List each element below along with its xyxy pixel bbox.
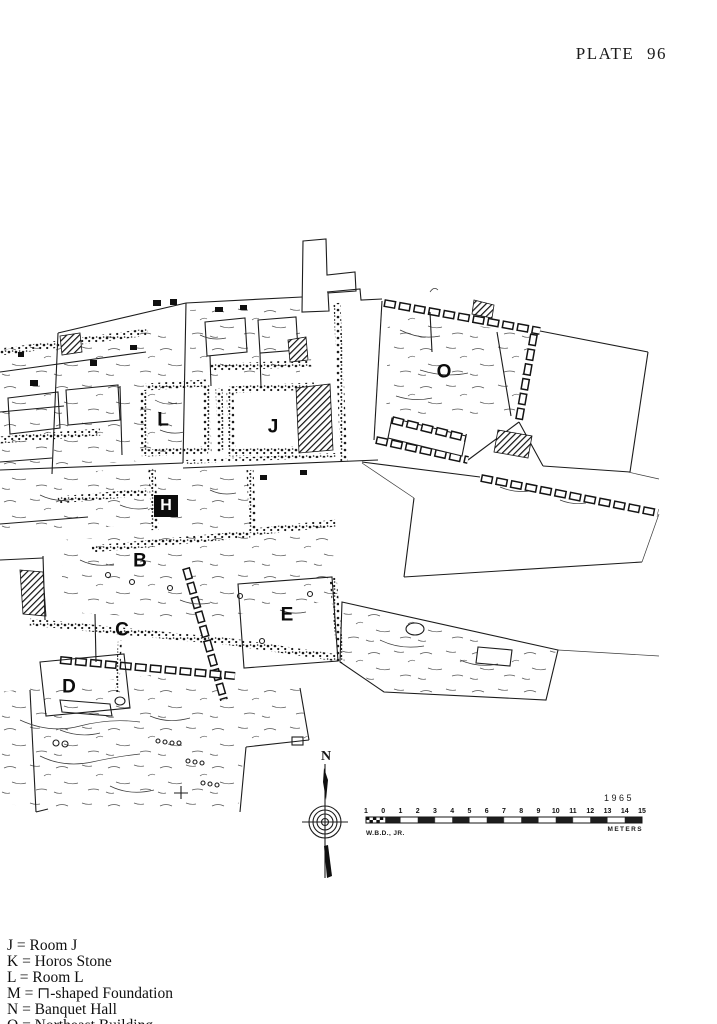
scale-bar-graphic	[366, 817, 644, 823]
scale-unit-label: METERS	[608, 826, 644, 833]
north-arrow-label: N	[321, 749, 331, 765]
surveyor-credit: W.B.D., JR.	[366, 830, 405, 837]
terrain-texture	[0, 305, 556, 812]
site-plan-drawing	[0, 0, 717, 1024]
east-wedge	[362, 462, 659, 577]
legend-entry-M: M = ⊓-shaped Foundation	[7, 986, 173, 1002]
plate-page: PLATE 96	[0, 0, 717, 1024]
legend-entry-J: J = Room J	[7, 938, 173, 954]
north-arrow	[302, 764, 348, 878]
survey-year: 1965	[604, 793, 634, 803]
legend-entry-L: L = Room L	[7, 970, 173, 986]
legend-entry-K: K = Horos Stone	[7, 954, 173, 970]
legend-entry-N: N = Banquet Hall	[7, 1002, 173, 1018]
legend-list: J = Room JK = Horos StoneL = Room LM = ⊓…	[7, 938, 173, 1024]
legend-entry-O: O = Northeast Building	[7, 1018, 173, 1024]
